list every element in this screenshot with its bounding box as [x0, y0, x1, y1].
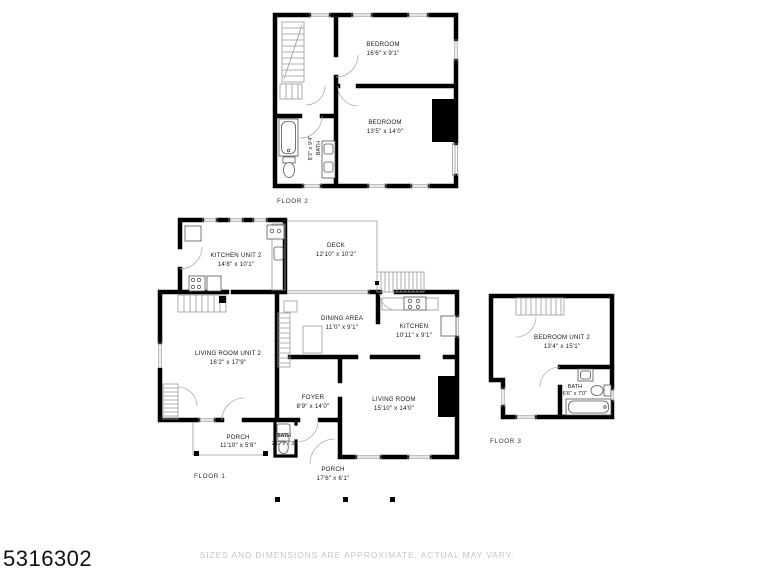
staircase-icon [282, 22, 304, 82]
room-label-living-unit2: LIVING ROOM UNIT 2 [195, 350, 261, 357]
floor2-label: FLOOR 2 [277, 198, 309, 205]
floor1-plan: KITCHEN UNIT 2 14'8" x 10'1" DECK 12'10"… [159, 219, 458, 502]
room-dims-dining: 11'0" x 9'1" [326, 324, 358, 331]
door-arcs [300, 55, 358, 138]
room-label-porch2: PORCH [321, 466, 344, 473]
room-label-bedroom-unit2: BEDROOM UNIT 2 [534, 334, 590, 341]
toilet-icon [283, 157, 295, 178]
room-dims-bedroom-unit2: 13'4" x 15'1" [544, 343, 581, 350]
porch-outline [193, 422, 395, 502]
toilet-icon [591, 385, 611, 396]
chimney [432, 99, 456, 142]
room-dims-bedroom1: 16'6" x 9'1" [367, 50, 400, 57]
room-label-bath2: BATH [316, 141, 322, 155]
room-label-bath3: BATH [568, 384, 582, 390]
stair-post [219, 296, 226, 303]
disclaimer-text: SIZES AND DIMENSIONS ARE APPROXIMATE, AC… [0, 550, 714, 560]
room-label-dining: DINING AREA [321, 315, 364, 322]
room-dims-bath3: 6'6" x 7'0" [563, 391, 588, 397]
closet-icon [280, 84, 302, 99]
room-dims-porch1: 11'10" x 5'8" [220, 442, 256, 449]
room-label-bedroom1: BEDROOM [366, 41, 399, 48]
room-dims-kitchen-unit2: 14'8" x 10'1" [218, 261, 255, 268]
room-dims-bath2: 8'3" x 9'4" [308, 136, 314, 161]
floorplan-image: BEDROOM 16'6" x 9'1" BEDROOM 13'5" x 14'… [0, 0, 768, 576]
floor3-label: FLOOR 3 [490, 438, 522, 445]
bathtub-icon [566, 399, 611, 415]
door-arcs [516, 317, 560, 387]
room-label-porch1: PORCH [226, 434, 249, 441]
room-label-kitchen: KITCHEN [400, 323, 429, 330]
vanity-sinks-icon [322, 141, 335, 178]
floor1-label: FLOOR 1 [194, 473, 226, 480]
sink-icon [578, 369, 593, 381]
basement-stairs-icon [178, 295, 226, 312]
staircase-icon [516, 298, 564, 315]
room-dims-living: 15'10" x 14'0" [374, 405, 414, 412]
room-dims-bath1: 2'6" x 7'3" [272, 441, 297, 447]
fireplace [438, 376, 457, 417]
room-label-bath1: BATH [277, 433, 291, 439]
floor3-plan: BEDROOM UNIT 2 13'4" x 15'1" BATH 6'6" x… [490, 296, 613, 445]
kitchen-appliances [382, 297, 456, 336]
floor2-plan: BEDROOM 16'6" x 9'1" BEDROOM 13'5" x 14'… [275, 14, 458, 205]
room-dims-kitchen: 10'11" x 9'1" [396, 332, 432, 339]
room-dims-bedroom2: 13'5" x 14'0" [367, 128, 404, 135]
room-label-deck: DECK [327, 242, 346, 249]
room-dims-deck: 12'10" x 10'2" [316, 251, 356, 258]
deck-post [375, 281, 379, 285]
window-seat-icon [163, 384, 178, 419]
room-label-kitchen-unit2: KITCHEN UNIT 2 [210, 252, 262, 259]
room-dims-living-unit2: 16'2" x 17'9" [210, 359, 247, 366]
room-label-bedroom2: BEDROOM [368, 119, 401, 126]
floorplan-page: BEDROOM 16'6" x 9'1" BEDROOM 13'5" x 14'… [0, 0, 768, 576]
room-label-living: LIVING ROOM [372, 396, 415, 403]
room-dims-foyer: 8'9" x 14'0" [297, 403, 330, 410]
room-dims-porch2: 17'6" x 6'1" [317, 475, 350, 482]
room-label-foyer: FOYER [302, 394, 325, 401]
bathtub-icon [279, 119, 298, 156]
